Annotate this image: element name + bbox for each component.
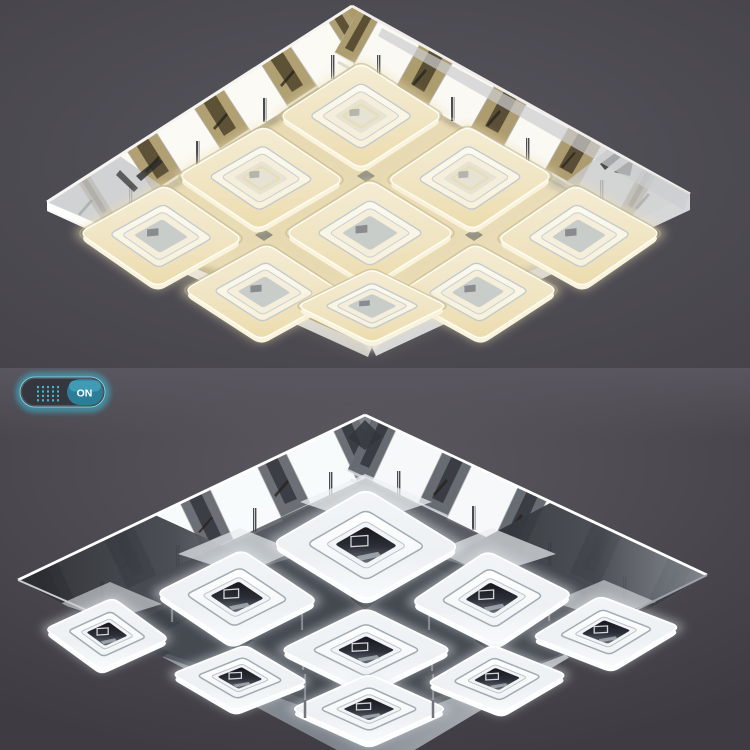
- svg-text:ON: ON: [77, 388, 93, 400]
